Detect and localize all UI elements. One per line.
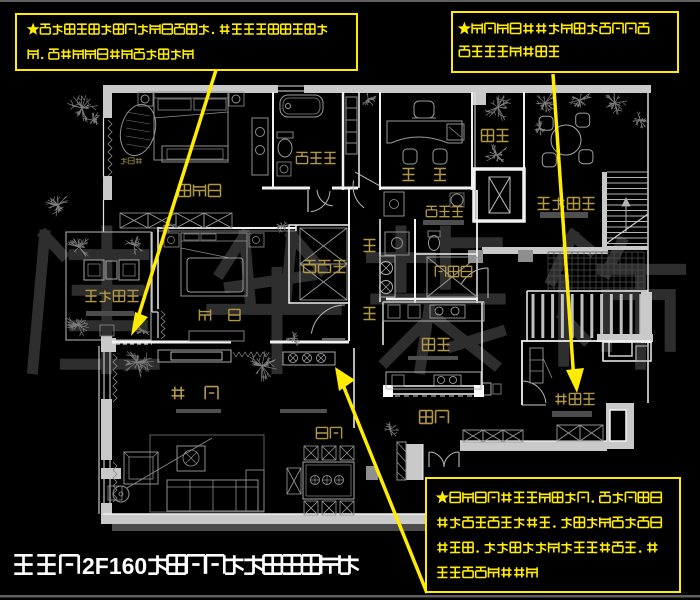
svg-text:2F160: 2F160 (82, 553, 147, 579)
